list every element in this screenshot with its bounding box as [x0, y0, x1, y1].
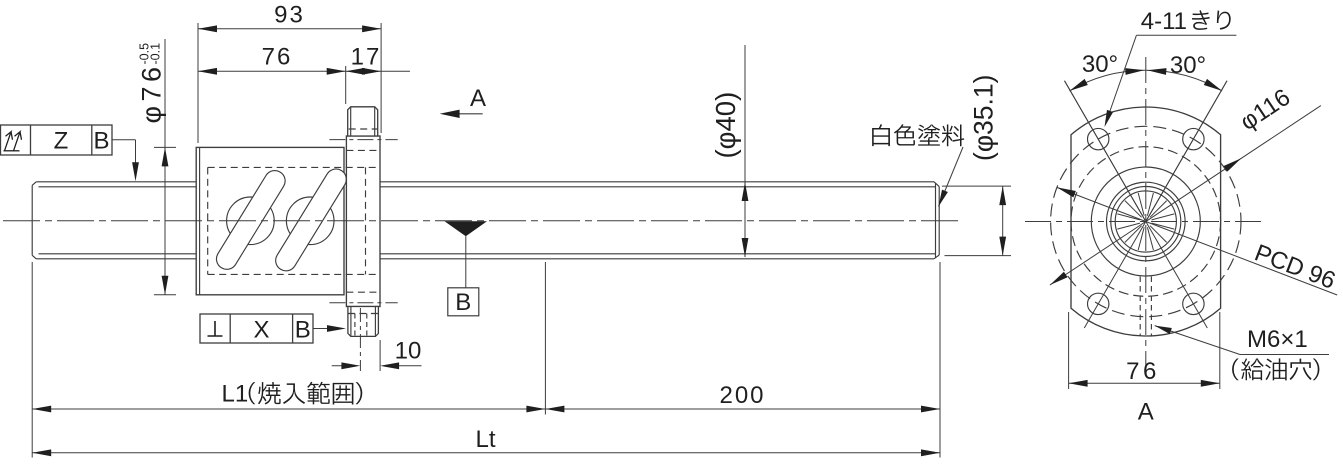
- svg-text:Z: Z: [54, 128, 69, 155]
- svg-text:B: B: [93, 128, 109, 155]
- svg-text:17: 17: [351, 44, 382, 71]
- svg-text:30°: 30°: [1082, 51, 1118, 78]
- svg-text:M6×1: M6×1: [1247, 326, 1308, 353]
- svg-text:B: B: [455, 289, 471, 316]
- svg-text:φ76: φ76: [137, 62, 167, 123]
- svg-text:76: 76: [262, 44, 293, 71]
- svg-text:X: X: [253, 317, 269, 344]
- svg-text:A: A: [1138, 399, 1154, 426]
- svg-text:L1: L1: [222, 381, 249, 408]
- svg-text:-0.5: -0.5: [138, 43, 152, 65]
- svg-text:(φ40): (φ40): [710, 92, 741, 159]
- svg-text:A: A: [470, 85, 486, 112]
- svg-text:B: B: [295, 317, 311, 344]
- svg-text:30°: 30°: [1170, 52, 1206, 79]
- svg-text:93: 93: [274, 2, 305, 29]
- svg-text:(φ35.1): (φ35.1): [969, 75, 999, 161]
- svg-text:10: 10: [395, 338, 422, 365]
- svg-text:4-11: 4-11: [1141, 8, 1187, 35]
- svg-text:76: 76: [1126, 358, 1160, 385]
- svg-text:200: 200: [719, 382, 765, 409]
- svg-text:Lt: Lt: [475, 426, 495, 453]
